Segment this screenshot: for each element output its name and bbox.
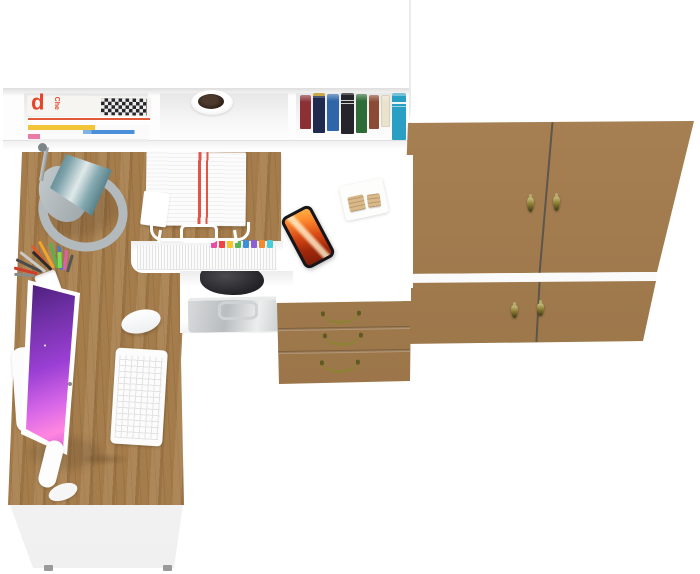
index-tab	[243, 240, 249, 248]
keyboard	[110, 348, 168, 447]
lamp-arm-joint	[38, 143, 47, 152]
monitor-logo-dot	[68, 382, 72, 386]
book	[392, 93, 406, 140]
paper-tray-wire-detail	[180, 224, 218, 243]
book	[313, 93, 325, 133]
index-tabs	[211, 240, 275, 249]
index-tab	[267, 240, 273, 248]
plant-pot	[191, 90, 233, 115]
index-tab	[227, 240, 233, 248]
book	[300, 95, 311, 129]
desk-file-niche	[131, 241, 283, 273]
desk-foot	[163, 565, 172, 571]
furniture-product-render: d Che	[0, 0, 700, 574]
briefcase-handle	[218, 301, 258, 321]
book	[381, 95, 390, 127]
index-tab	[251, 240, 257, 248]
plant-pot-soil	[198, 94, 224, 109]
highlighter	[57, 252, 62, 268]
dark-bag	[200, 271, 264, 295]
book-row	[298, 92, 408, 142]
monitor	[12, 272, 122, 517]
magazine-stack: d Che	[27, 95, 151, 117]
wooden-memo-block	[367, 193, 382, 208]
magazine-letter: d	[31, 91, 45, 113]
book	[341, 93, 354, 134]
book	[356, 94, 367, 133]
desk-foot	[44, 565, 53, 571]
wooden-memo-block	[347, 194, 366, 212]
book	[327, 94, 339, 131]
book	[369, 95, 379, 129]
magazine-checker-pattern	[101, 98, 147, 115]
magazine-spine-text: Che	[53, 97, 60, 110]
index-tab	[219, 240, 225, 248]
magazine-layer	[30, 139, 148, 142]
index-tab	[259, 240, 265, 248]
metal-briefcase	[188, 296, 285, 333]
